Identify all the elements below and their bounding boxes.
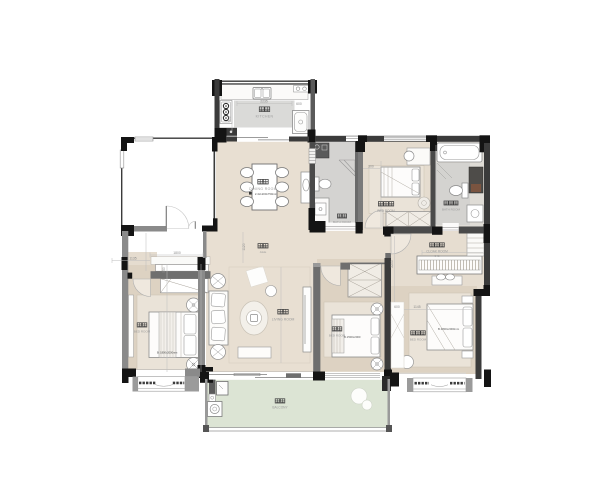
svg-text:Aisle: Aisle [260, 250, 267, 254]
svg-text:B.1800x2000mm: B.1800x2000mm [438, 327, 460, 331]
svg-text:900: 900 [228, 116, 232, 122]
svg-text:1135: 1135 [129, 257, 136, 261]
svg-text:BATH ROOM: BATH ROOM [442, 208, 460, 212]
svg-text:LIVING ROOM: LIVING ROOM [272, 318, 295, 322]
svg-text:300: 300 [368, 165, 374, 169]
svg-text:940: 940 [434, 254, 439, 258]
svg-text:KITCHEN: KITCHEN [256, 115, 274, 119]
svg-text:BATH ROOM: BATH ROOM [333, 220, 351, 224]
svg-text:1120: 1120 [242, 243, 246, 250]
svg-text:BED ROOM: BED ROOM [410, 338, 427, 342]
svg-text:600: 600 [394, 305, 400, 309]
svg-text:600: 600 [296, 102, 302, 106]
svg-text:BED ROOM: BED ROOM [134, 330, 151, 334]
svg-text:1145: 1145 [413, 305, 420, 309]
svg-text:550: 550 [162, 267, 166, 273]
svg-text:1800: 1800 [173, 251, 181, 255]
svg-text:BED ROOM: BED ROOM [329, 334, 346, 338]
svg-text:2.4x1200x750mm: 2.4x1200x750mm [255, 192, 278, 196]
svg-text:BALCONY: BALCONY [272, 406, 288, 410]
svg-text:B.1500x2000: B.1500x2000 [344, 335, 361, 339]
svg-text:DINING ROOM: DINING ROOM [249, 187, 277, 191]
svg-text:BED ROOM: BED ROOM [377, 209, 395, 213]
svg-text:2200: 2200 [390, 260, 394, 268]
svg-text:CLOAK ROOM: CLOAK ROOM [426, 250, 448, 254]
svg-text:2235: 2235 [260, 100, 268, 104]
